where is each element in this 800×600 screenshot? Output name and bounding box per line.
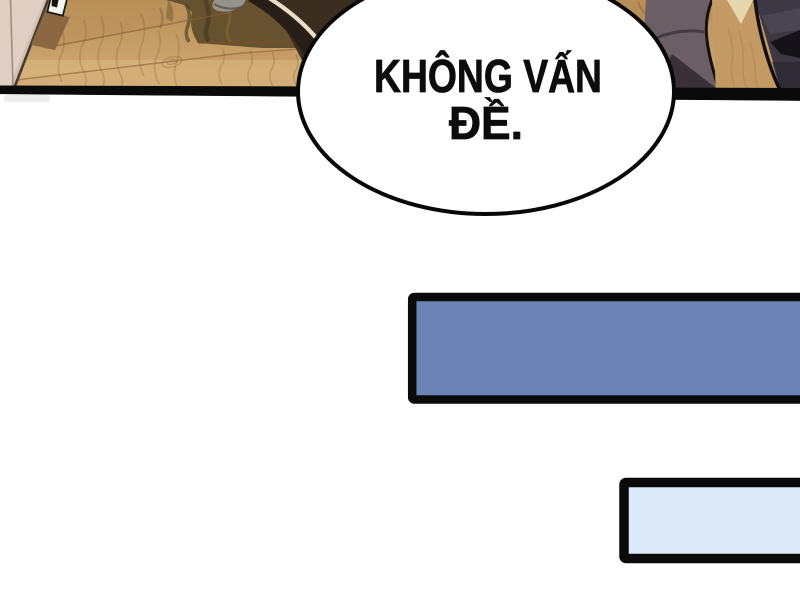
svg-text:ĐỀ.: ĐỀ. xyxy=(449,97,523,149)
svg-text:KHÔNG VẤN: KHÔNG VẤN xyxy=(374,50,602,102)
